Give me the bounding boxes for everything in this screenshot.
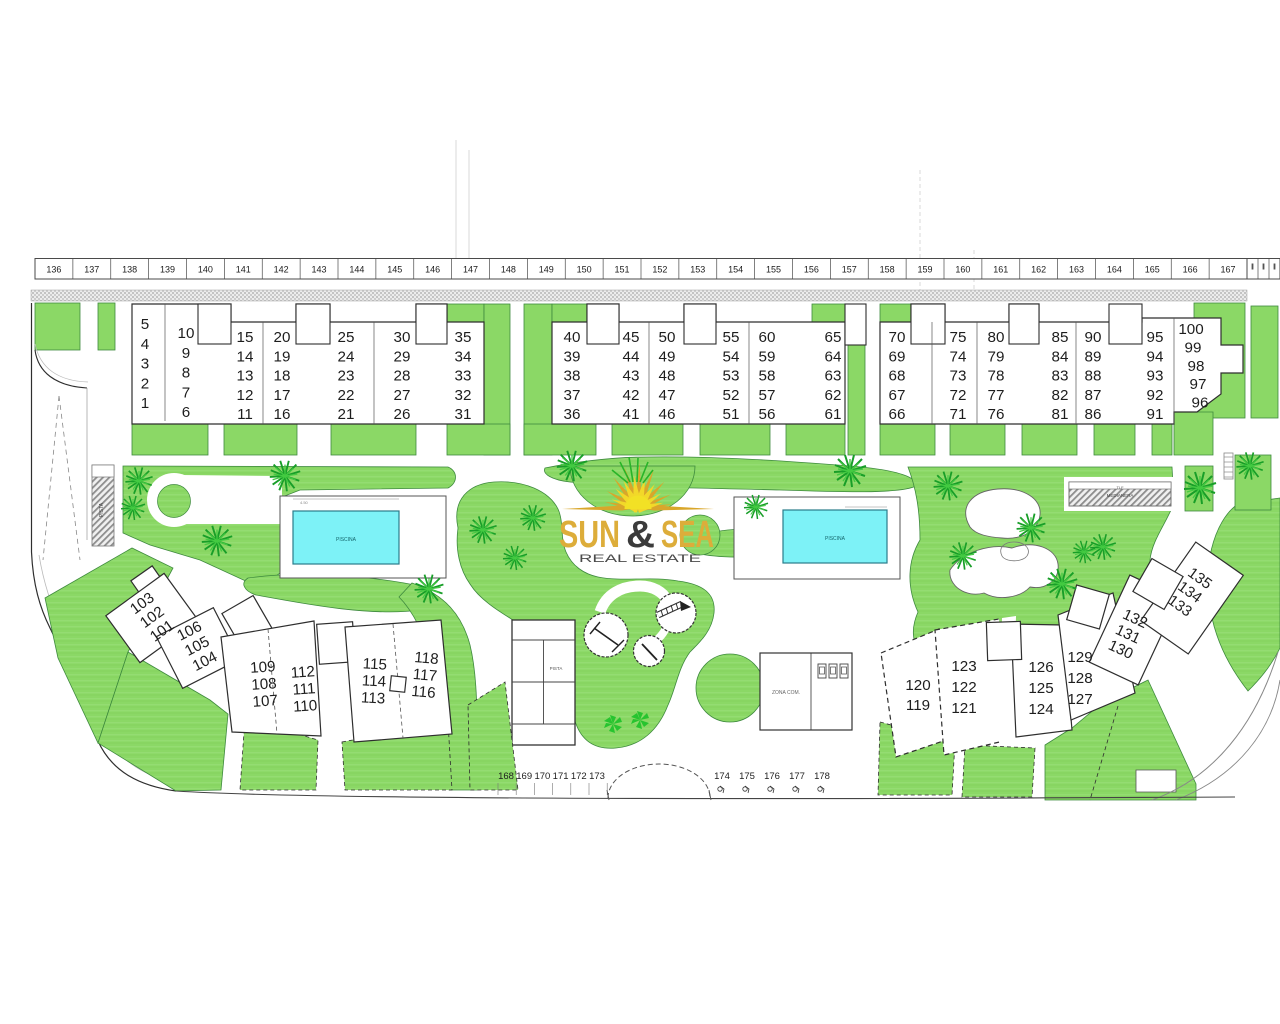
svg-text:140: 140	[198, 265, 213, 275]
svg-text:71: 71	[950, 406, 967, 423]
svg-text:148: 148	[501, 265, 516, 275]
svg-text:1: 1	[141, 395, 149, 412]
svg-text:21: 21	[338, 406, 355, 423]
svg-text:157: 157	[842, 265, 857, 275]
svg-text:147: 147	[463, 265, 478, 275]
svg-text:87: 87	[1085, 387, 1102, 404]
svg-text:70: 70	[889, 329, 906, 346]
svg-text:128: 128	[1067, 670, 1092, 687]
svg-text:109: 109	[250, 658, 276, 677]
svg-text:176: 176	[764, 771, 780, 782]
svg-text:85: 85	[1052, 329, 1069, 346]
svg-text:67: 67	[889, 387, 906, 404]
svg-text:173: 173	[589, 771, 605, 782]
svg-text:136: 136	[46, 265, 61, 275]
svg-text:121: 121	[951, 700, 976, 717]
svg-text:107: 107	[252, 692, 278, 711]
svg-text:4: 4	[141, 336, 149, 353]
svg-text:95: 95	[1147, 329, 1164, 346]
svg-text:139: 139	[160, 265, 175, 275]
svg-text:53: 53	[723, 368, 740, 385]
svg-text:48: 48	[659, 368, 676, 385]
svg-text:94: 94	[1147, 348, 1164, 365]
svg-text:91: 91	[1147, 406, 1164, 423]
svg-text:35: 35	[455, 329, 472, 346]
svg-text:TLF: TLF	[1116, 485, 1124, 490]
svg-text:119: 119	[906, 697, 930, 714]
svg-text:127: 127	[1067, 691, 1092, 708]
svg-text:SUN: SUN	[559, 514, 620, 556]
svg-text:5: 5	[141, 316, 149, 333]
svg-text:100: 100	[1178, 321, 1203, 338]
svg-text:113: 113	[361, 689, 386, 707]
svg-text:76: 76	[988, 406, 1005, 423]
svg-text:16: 16	[274, 406, 291, 423]
svg-text:62: 62	[825, 387, 842, 404]
svg-text:156: 156	[804, 265, 819, 275]
svg-text:162: 162	[1031, 265, 1046, 275]
svg-text:143: 143	[312, 265, 327, 275]
svg-text:15: 15	[237, 329, 254, 346]
svg-text:63: 63	[825, 368, 842, 385]
svg-text:141: 141	[236, 265, 251, 275]
svg-text:SEA: SEA	[661, 514, 714, 556]
svg-text:116: 116	[411, 683, 437, 702]
svg-text:13: 13	[237, 368, 254, 385]
svg-text:92: 92	[1147, 387, 1164, 404]
svg-text:59: 59	[759, 348, 776, 365]
svg-text:37: 37	[564, 387, 581, 404]
svg-text:7: 7	[182, 384, 190, 401]
svg-text:74: 74	[950, 348, 967, 365]
svg-text:PISTA: PISTA	[99, 502, 105, 517]
svg-text:177: 177	[789, 771, 805, 782]
svg-text:108: 108	[251, 675, 277, 694]
svg-text:29: 29	[394, 348, 411, 365]
svg-text:55: 55	[723, 329, 740, 346]
svg-text:83: 83	[1052, 368, 1069, 385]
svg-text:75: 75	[950, 329, 967, 346]
svg-text:28: 28	[394, 368, 411, 385]
svg-text:114: 114	[361, 672, 386, 690]
svg-text:PISCINA: PISCINA	[825, 536, 846, 542]
svg-text:27: 27	[394, 387, 411, 404]
svg-text:43: 43	[623, 368, 640, 385]
svg-text:153: 153	[690, 265, 705, 275]
svg-text:93: 93	[1147, 368, 1164, 385]
svg-text:117: 117	[412, 666, 438, 685]
svg-text:65: 65	[825, 329, 842, 346]
svg-text:168: 168	[498, 771, 514, 782]
svg-text:61: 61	[825, 406, 842, 423]
svg-text:26: 26	[394, 406, 411, 423]
svg-text:89: 89	[1085, 348, 1102, 365]
svg-text:24: 24	[338, 348, 355, 365]
svg-text:45: 45	[623, 329, 640, 346]
svg-text:25: 25	[338, 329, 355, 346]
svg-text:123: 123	[951, 658, 976, 675]
svg-text:38: 38	[564, 368, 581, 385]
svg-text:150: 150	[577, 265, 592, 275]
svg-text:158: 158	[880, 265, 895, 275]
svg-text:4.50: 4.50	[300, 500, 309, 505]
svg-text:145: 145	[387, 265, 402, 275]
svg-text:14: 14	[237, 348, 254, 365]
svg-text:138: 138	[122, 265, 137, 275]
svg-text:81: 81	[1052, 406, 1069, 423]
svg-text:99: 99	[1185, 339, 1202, 356]
svg-text:40: 40	[564, 329, 581, 346]
svg-text:8: 8	[182, 365, 190, 382]
svg-text:165: 165	[1145, 265, 1160, 275]
svg-text:30: 30	[394, 329, 411, 346]
svg-text:22: 22	[338, 387, 355, 404]
svg-text:57: 57	[759, 387, 776, 404]
svg-text:31: 31	[455, 406, 472, 423]
svg-text:167: 167	[1221, 265, 1236, 275]
svg-text:19: 19	[274, 348, 291, 365]
svg-text:11: 11	[237, 406, 253, 423]
svg-text:160: 160	[955, 265, 970, 275]
svg-text:44: 44	[623, 348, 640, 365]
svg-text:REAL ESTATE: REAL ESTATE	[579, 553, 701, 565]
svg-text:178: 178	[814, 771, 830, 782]
svg-text:46: 46	[659, 406, 676, 423]
svg-text:82: 82	[1052, 387, 1069, 404]
svg-text:64: 64	[825, 348, 842, 365]
svg-text:169: 169	[516, 771, 532, 782]
svg-text:163: 163	[1069, 265, 1084, 275]
svg-text:172: 172	[571, 771, 587, 782]
svg-text:20: 20	[274, 329, 291, 346]
svg-text:52: 52	[723, 387, 740, 404]
svg-text:110: 110	[293, 697, 318, 716]
svg-text:33: 33	[455, 368, 472, 385]
svg-text:68: 68	[889, 368, 906, 385]
svg-text:10: 10	[178, 325, 195, 342]
svg-text:155: 155	[766, 265, 781, 275]
svg-text:137: 137	[84, 265, 99, 275]
svg-text:124: 124	[1028, 701, 1053, 718]
svg-text:142: 142	[274, 265, 289, 275]
svg-text:97: 97	[1190, 376, 1207, 393]
svg-text:58: 58	[759, 368, 776, 385]
svg-text:78: 78	[988, 368, 1005, 385]
svg-text:146: 146	[425, 265, 440, 275]
svg-text:122: 122	[951, 679, 976, 696]
svg-text:96: 96	[1192, 395, 1209, 412]
svg-text:77: 77	[988, 387, 1005, 404]
svg-text:39: 39	[564, 348, 581, 365]
svg-text:56: 56	[759, 406, 776, 423]
svg-text:ZONA COM.: ZONA COM.	[772, 690, 800, 696]
svg-text:69: 69	[889, 348, 906, 365]
svg-text:50: 50	[659, 329, 676, 346]
svg-text:175: 175	[739, 771, 755, 782]
svg-text:86: 86	[1085, 406, 1102, 423]
svg-text:PISCINA: PISCINA	[336, 537, 357, 543]
svg-text:9: 9	[182, 345, 190, 362]
svg-text:129: 129	[1067, 649, 1092, 666]
svg-text:152: 152	[652, 265, 667, 275]
svg-text:54: 54	[723, 348, 740, 365]
svg-text:115: 115	[362, 655, 387, 673]
svg-text:80: 80	[988, 329, 1005, 346]
svg-text:12: 12	[237, 387, 254, 404]
svg-text:170: 170	[534, 771, 550, 782]
svg-text:66: 66	[889, 406, 906, 423]
svg-text:2: 2	[141, 375, 149, 392]
svg-text:88: 88	[1085, 368, 1102, 385]
svg-text:112: 112	[290, 663, 315, 682]
svg-text:164: 164	[1107, 265, 1122, 275]
svg-text:126: 126	[1028, 659, 1053, 676]
svg-text:18: 18	[274, 368, 291, 385]
svg-text:32: 32	[455, 387, 472, 404]
svg-text:118: 118	[414, 649, 440, 668]
svg-text:47: 47	[659, 387, 676, 404]
svg-text:3: 3	[141, 356, 149, 373]
svg-text:149: 149	[539, 265, 554, 275]
svg-text:6: 6	[182, 404, 190, 421]
svg-text:60: 60	[759, 329, 776, 346]
svg-text:159: 159	[918, 265, 933, 275]
svg-text:41: 41	[623, 406, 640, 423]
svg-text:90: 90	[1085, 329, 1102, 346]
svg-text:&: &	[626, 514, 655, 556]
svg-text:PISTA: PISTA	[550, 666, 563, 671]
svg-text:42: 42	[623, 387, 640, 404]
svg-text:49: 49	[659, 348, 676, 365]
svg-text:154: 154	[728, 265, 743, 275]
svg-text:125: 125	[1028, 680, 1053, 697]
svg-text:120: 120	[905, 677, 930, 694]
svg-text:161: 161	[993, 265, 1008, 275]
svg-text:17: 17	[274, 387, 291, 404]
svg-text:36: 36	[564, 406, 581, 423]
svg-text:98: 98	[1188, 358, 1205, 375]
svg-text:34: 34	[455, 348, 472, 365]
svg-text:MEDIANERA: MEDIANERA	[1107, 493, 1134, 498]
svg-text:23: 23	[338, 368, 355, 385]
svg-text:174: 174	[714, 771, 730, 782]
svg-text:51: 51	[723, 406, 740, 423]
svg-text:73: 73	[950, 368, 967, 385]
svg-text:84: 84	[1052, 348, 1069, 365]
svg-text:151: 151	[615, 265, 630, 275]
svg-text:111: 111	[292, 680, 316, 699]
svg-text:144: 144	[349, 265, 364, 275]
svg-text:72: 72	[950, 387, 967, 404]
svg-text:79: 79	[988, 348, 1005, 365]
svg-text:166: 166	[1183, 265, 1198, 275]
svg-text:171: 171	[553, 771, 569, 782]
